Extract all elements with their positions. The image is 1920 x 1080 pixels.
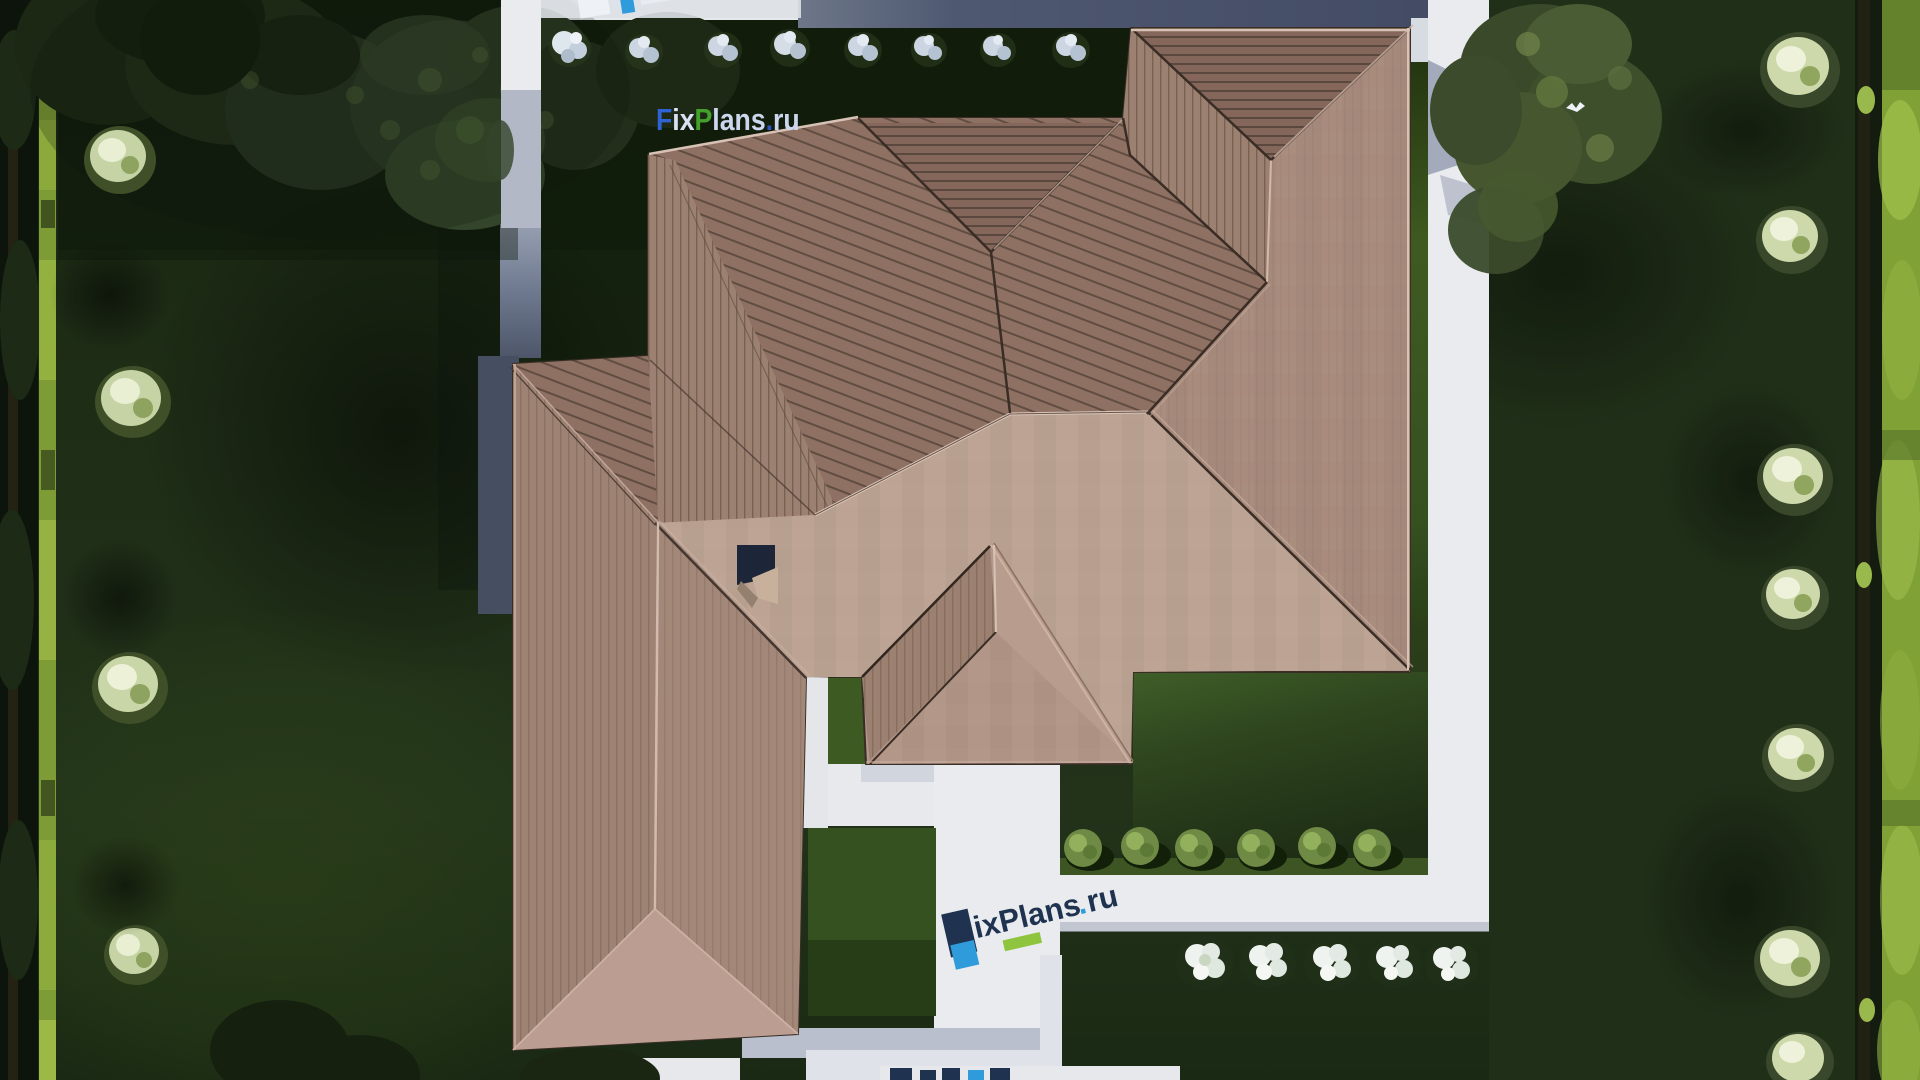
svg-text:FixPlans.ru: FixPlans.ru bbox=[656, 103, 800, 137]
